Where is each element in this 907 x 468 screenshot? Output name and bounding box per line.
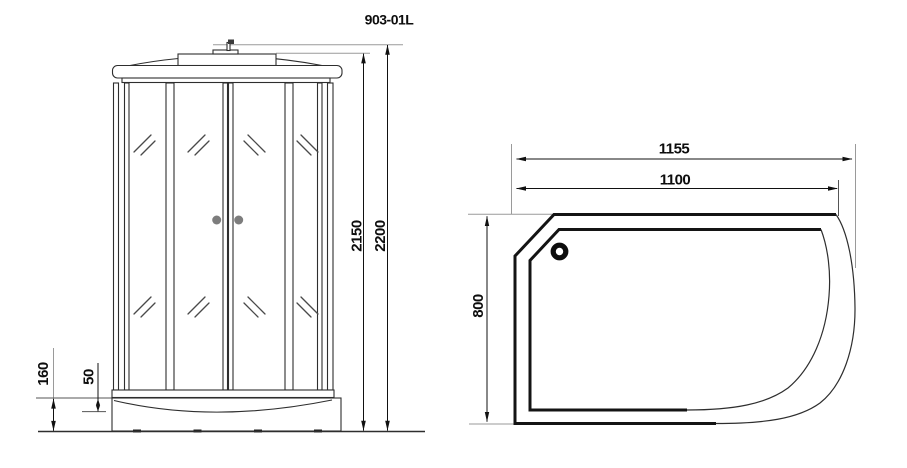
drain-icon bbox=[553, 245, 566, 258]
frame-post bbox=[229, 83, 234, 390]
dim-label-total-height: 2200 bbox=[372, 220, 389, 252]
roof-cornice-band bbox=[122, 78, 330, 83]
technical-drawing-canvas: 903-01L bbox=[0, 0, 907, 468]
dim-label-depth: 800 bbox=[470, 294, 487, 318]
roof-cornice bbox=[113, 66, 343, 79]
roof-top-plate bbox=[178, 54, 276, 66]
frame-post bbox=[125, 83, 130, 390]
frame-post bbox=[223, 83, 228, 390]
frame-post bbox=[166, 83, 174, 390]
frame-post bbox=[328, 83, 334, 390]
dim-label-door-width: 1100 bbox=[660, 171, 691, 188]
frame-post bbox=[318, 83, 323, 390]
model-number-label: 903-01L bbox=[365, 11, 415, 27]
shower-head-icon bbox=[228, 40, 234, 45]
page: 903-01L bbox=[0, 0, 907, 468]
door-handle bbox=[212, 216, 221, 225]
dim-label-tray-height: 160 bbox=[35, 362, 52, 386]
door-handle bbox=[234, 216, 243, 225]
dim-label-overall-width: 1155 bbox=[659, 140, 690, 157]
frame-post bbox=[114, 83, 119, 390]
dim-label-cabin-height: 2150 bbox=[348, 220, 365, 252]
dim-label-tray-step: 50 bbox=[80, 369, 97, 385]
tray-front bbox=[112, 398, 341, 431]
bottom-rail bbox=[112, 390, 334, 398]
shower-head-base bbox=[213, 50, 238, 54]
frame-post bbox=[285, 83, 293, 390]
